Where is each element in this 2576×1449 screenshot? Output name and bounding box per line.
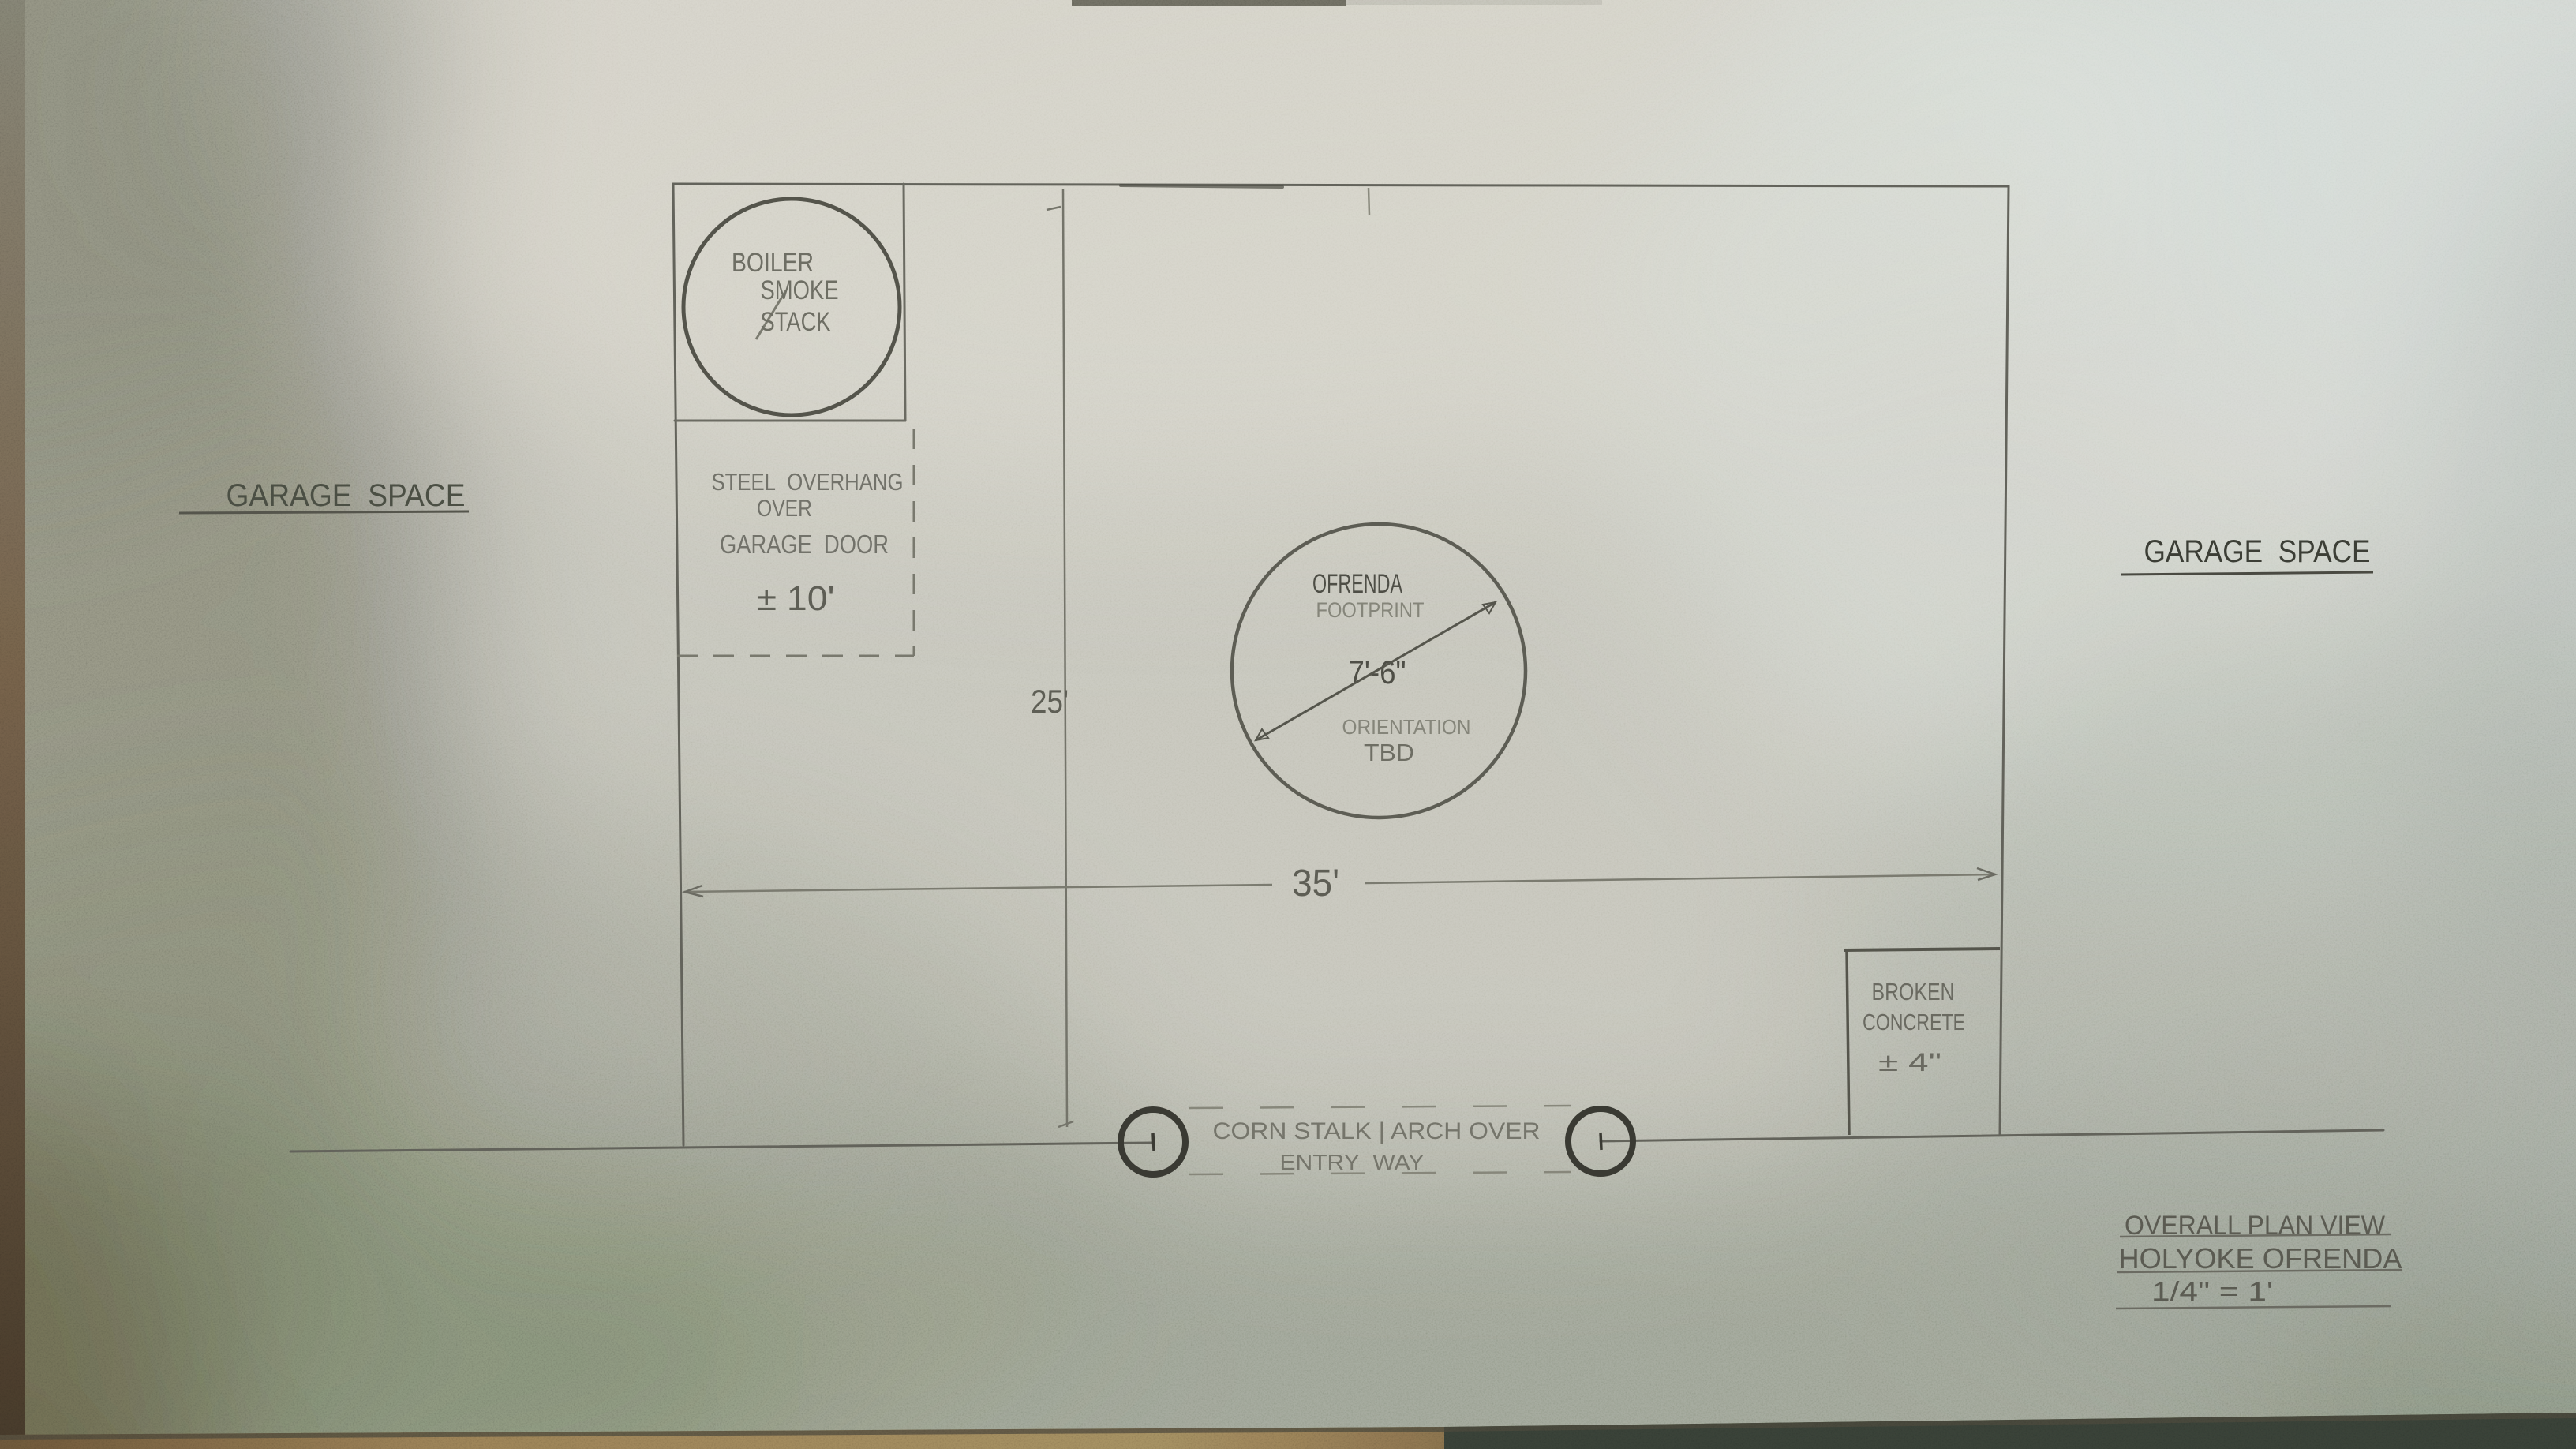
svg-text:GARAGE SPACE: GARAGE SPACE xyxy=(2144,534,2371,569)
svg-text:25': 25' xyxy=(1031,683,1069,720)
svg-text:± 4": ± 4" xyxy=(1878,1048,1941,1076)
svg-text:ENTRY WAY: ENTRY WAY xyxy=(1280,1150,1425,1174)
svg-text:FOOTPRINT: FOOTPRINT xyxy=(1316,598,1425,622)
svg-text:STEEL OVERHANG: STEEL OVERHANG xyxy=(712,468,904,496)
svg-text:SMOKE: SMOKE xyxy=(761,275,839,305)
svg-text:TBD: TBD xyxy=(1364,739,1414,766)
svg-text:GARAGE DOOR: GARAGE DOOR xyxy=(720,530,889,559)
svg-text:STACK: STACK xyxy=(761,307,831,337)
svg-text:ORIENTATION: ORIENTATION xyxy=(1342,715,1471,739)
svg-text:OFRENDA: OFRENDA xyxy=(1312,569,1402,599)
svg-text:± 10': ± 10' xyxy=(757,579,835,618)
svg-text:CORN STALK | ARCH OVER: CORN STALK | ARCH OVER xyxy=(1213,1118,1541,1144)
svg-text:BROKEN: BROKEN xyxy=(1872,978,1955,1005)
svg-text:1/4" = 1': 1/4" = 1' xyxy=(2151,1277,2273,1307)
svg-text:BOILER: BOILER xyxy=(732,248,814,278)
svg-text:35': 35' xyxy=(1292,863,1339,904)
svg-text:OVER: OVER xyxy=(757,496,812,522)
svg-text:CONCRETE: CONCRETE xyxy=(1863,1010,1965,1035)
svg-text:GARAGE SPACE: GARAGE SPACE xyxy=(227,478,466,513)
